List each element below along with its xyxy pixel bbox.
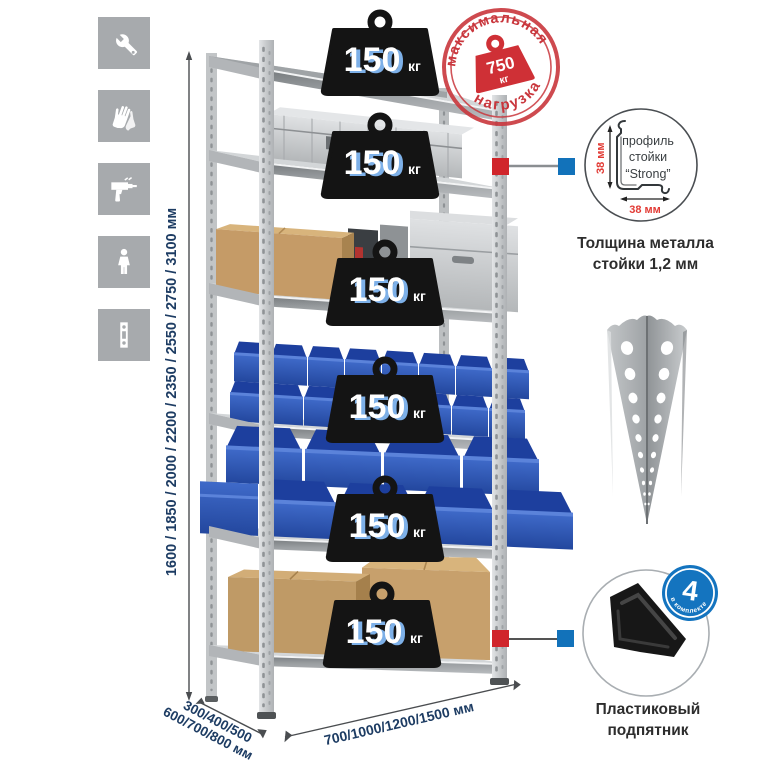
svg-text:150: 150 xyxy=(344,144,401,182)
corner-post-image xyxy=(599,306,695,534)
foot-callout xyxy=(492,630,574,647)
stamp-weight-icon: 750 кг xyxy=(464,30,535,94)
plastic-foot-right xyxy=(490,678,509,685)
svg-text:кг: кг xyxy=(408,161,421,177)
height-dimension-label: 1600 / 1850 / 2000 / 2200 / 2350 / 2550 … xyxy=(164,208,180,576)
callout-blue-square-top xyxy=(558,158,575,175)
callout-blue-square-bottom xyxy=(557,630,574,647)
profile-caption: Толщина металла стойки 1,2 мм xyxy=(558,234,733,276)
foot-caption: Пластиковый подпятник xyxy=(558,700,738,742)
height-dimension: 1600 / 1850 / 2000 / 2200 / 2350 / 2550 … xyxy=(164,51,192,701)
svg-text:кг: кг xyxy=(413,405,426,421)
svg-text:150: 150 xyxy=(349,507,406,545)
svg-text:кг: кг xyxy=(413,288,426,304)
plastic-foot-detail: 4 в комплекте xyxy=(580,555,726,707)
callout-red-square-top xyxy=(492,158,509,175)
svg-text:150: 150 xyxy=(349,388,406,426)
callout-red-square-bottom xyxy=(492,630,509,647)
profile-callout xyxy=(492,158,575,175)
svg-text:150: 150 xyxy=(344,41,401,79)
profile-label-line1: профиль xyxy=(622,134,674,148)
svg-text:150: 150 xyxy=(349,271,406,309)
svg-text:кг: кг xyxy=(408,58,421,74)
shelving-rack-infographic: 150 150 кг 150 150 кг 150 150 кг 150 150… xyxy=(0,0,765,765)
svg-text:150: 150 xyxy=(346,613,403,651)
width-dimension: 700/1000/1200/1500 мм xyxy=(280,678,521,748)
svg-text:кг: кг xyxy=(410,630,423,646)
shelf-1-load-badge: 150 150 кг xyxy=(323,13,437,94)
profile-horizontal-dim: 38 мм xyxy=(629,204,661,216)
plastic-foot-left xyxy=(257,712,276,719)
profile-detail-circle: 38 мм 38 мм профиль стойки “Strong” xyxy=(580,103,704,229)
profile-vertical-dim: 38 мм xyxy=(595,142,607,174)
profile-label-line2: стойки xyxy=(629,150,667,164)
profile-label-line3: “Strong” xyxy=(625,167,670,181)
svg-text:кг: кг xyxy=(413,524,426,540)
